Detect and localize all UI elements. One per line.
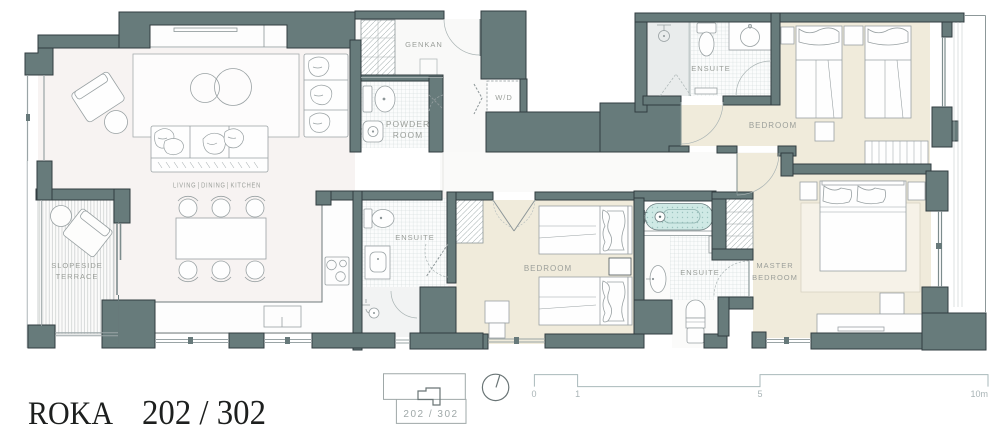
svg-text:ENSUITE: ENSUITE [691,64,731,73]
svg-text:1: 1 [575,389,580,399]
svg-text:SLOPESIDE: SLOPESIDE [51,261,103,270]
svg-text:ROKA: ROKA [28,396,113,432]
svg-text:10m: 10m [970,389,988,399]
svg-text:5: 5 [757,389,762,399]
svg-text:TERRACE: TERRACE [56,272,99,281]
svg-text:0: 0 [531,389,536,399]
svg-text:202 / 302: 202 / 302 [403,409,458,420]
svg-text:W/D: W/D [495,93,513,102]
svg-text:ENSUITE: ENSUITE [680,268,720,277]
svg-text:POWDER: POWDER [386,119,430,129]
svg-text:LIVING | DINING | KITCHEN: LIVING | DINING | KITCHEN [173,181,261,190]
svg-text:BEDROOM: BEDROOM [524,264,572,273]
svg-text:202 / 302: 202 / 302 [142,393,266,432]
svg-text:MASTER: MASTER [756,261,793,270]
svg-text:BEDROOM: BEDROOM [752,273,798,282]
svg-text:BEDROOM: BEDROOM [749,121,797,130]
svg-text:GENKAN: GENKAN [405,40,443,49]
svg-text:ENSUITE: ENSUITE [395,233,435,242]
svg-text:ROOM: ROOM [393,130,423,140]
